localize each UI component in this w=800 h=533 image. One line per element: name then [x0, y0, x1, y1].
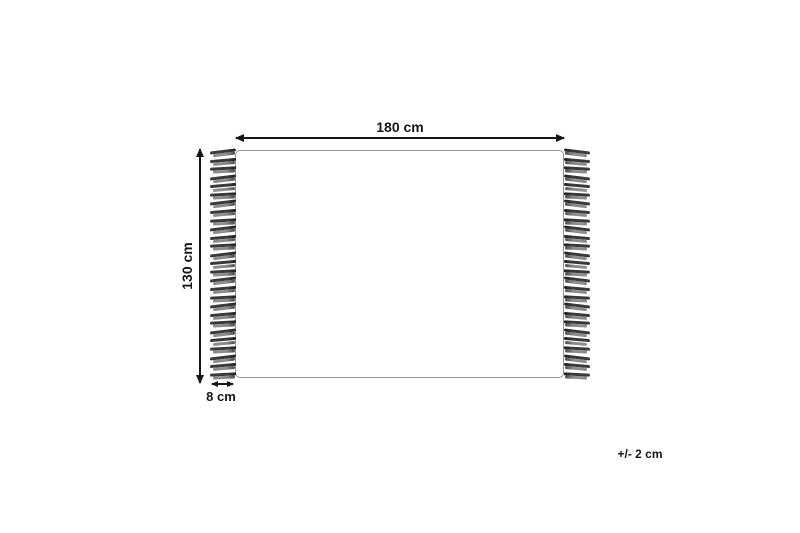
width-dimension-label: 180 cm [340, 119, 460, 135]
tassel [210, 346, 236, 353]
tassel [564, 252, 590, 259]
arrowhead-up-icon [196, 148, 204, 157]
tassel [210, 372, 236, 379]
tassel [564, 364, 590, 370]
tassel [210, 304, 236, 311]
tassel [210, 227, 236, 234]
dimension-diagram: 180 cm 130 cm 8 cm +/- 2 cm [0, 0, 800, 533]
tassel [564, 150, 590, 157]
tassel [210, 364, 236, 370]
tassel [210, 313, 236, 319]
tassel [564, 304, 590, 311]
tassel [564, 313, 590, 319]
width-dimension-arrow [236, 137, 564, 139]
arrowhead-left-icon [211, 381, 218, 387]
tassel [210, 236, 236, 242]
fringe-right [564, 150, 590, 379]
tassel [564, 159, 590, 165]
tassel [564, 210, 590, 216]
tassel [564, 372, 590, 379]
tassel [210, 184, 236, 190]
tassel [564, 236, 590, 242]
tassel [210, 295, 236, 302]
height-dimension-arrow [199, 149, 201, 383]
fringe-dimension-label: 8 cm [196, 389, 246, 404]
tassel [210, 287, 236, 293]
tassel [564, 175, 590, 182]
tassel [210, 210, 236, 216]
tassel [564, 338, 590, 344]
tassel [210, 159, 236, 165]
tassel [564, 244, 590, 251]
tassel [564, 269, 590, 276]
tassel [210, 338, 236, 344]
arrowhead-left-icon [235, 134, 244, 142]
tassel [564, 355, 590, 362]
tassel [564, 261, 590, 267]
tassel [564, 201, 590, 208]
tassel [210, 329, 236, 336]
tassel [210, 150, 236, 157]
arrowhead-right-icon [227, 381, 234, 387]
tassel [210, 201, 236, 208]
tassel [210, 218, 236, 225]
arrowhead-right-icon [556, 134, 565, 142]
tassel [564, 295, 590, 302]
height-dimension-label: 130 cm [179, 226, 195, 306]
arrowhead-down-icon [196, 375, 204, 384]
tassel [210, 192, 236, 199]
tassel [564, 278, 590, 285]
tassel [564, 227, 590, 234]
tassel [210, 269, 236, 276]
tassel [564, 287, 590, 293]
tassel [564, 329, 590, 336]
fringe-dimension-arrow [212, 383, 233, 385]
tassel [210, 244, 236, 251]
tassel [210, 252, 236, 259]
fringe-left [210, 150, 236, 379]
tassel [210, 321, 236, 328]
tassel [564, 321, 590, 328]
tolerance-note: +/- 2 cm [595, 447, 685, 461]
tassel [210, 278, 236, 285]
tassel [210, 355, 236, 362]
tassel [210, 167, 236, 174]
tassel [564, 218, 590, 225]
tassel [564, 167, 590, 174]
tassel [210, 261, 236, 267]
tassel [564, 184, 590, 190]
tassel [210, 175, 236, 182]
tassel [564, 192, 590, 199]
rug-outline [235, 150, 564, 378]
tassel [564, 346, 590, 353]
